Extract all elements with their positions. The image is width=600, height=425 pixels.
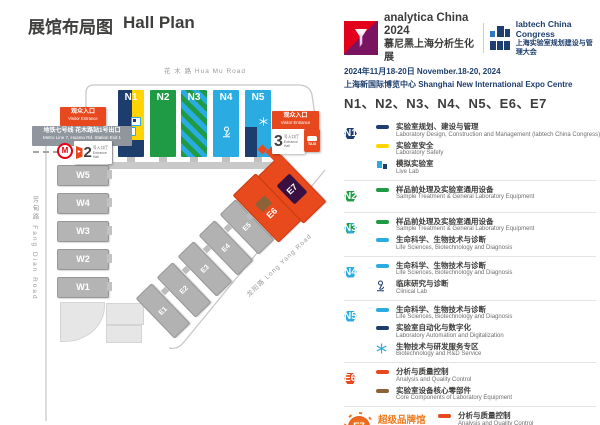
- hall-w2: W2: [57, 249, 109, 270]
- badge-n5: N5: [344, 311, 357, 322]
- legend-section-n3: N3 样品前处理及实验室通用设备Sample Treatment & Gener…: [344, 212, 596, 256]
- visitor-entrance-cn: 观众入口: [60, 109, 106, 116]
- hall-w4: W4: [57, 193, 109, 214]
- analytica-name: analytica China 2024: [384, 12, 477, 38]
- legend-section-n1: N1 实验室规划、建设与管理Laboratory Design, Constru…: [344, 118, 596, 180]
- hall-e1-label: E1: [157, 306, 168, 317]
- hall-e4-label: E4: [220, 243, 231, 254]
- taxi-car-icon: [307, 136, 317, 141]
- event-venue: 上海新国际博览中心 Shanghai New International Exp…: [344, 80, 596, 90]
- entrance-3-label-en: Entrance Hall: [284, 140, 303, 148]
- logo-row: analytica China 2024 慕尼黑上海分析生化展 labtech …: [344, 12, 596, 64]
- snowflake-icon: [259, 117, 268, 126]
- swatch-blue: [376, 308, 389, 312]
- entrance-2-label-en: Entrance Hall: [93, 151, 110, 159]
- shanghai-metro-logo: M: [57, 143, 73, 159]
- visitor-entrance-cn: 观众入口: [272, 113, 319, 120]
- labtech-name: labtech China Congress: [516, 19, 596, 39]
- legend-item: 模拟实验室Live Lab: [376, 160, 600, 176]
- swatch-yellow: [376, 144, 389, 148]
- hall-n3: N3: [181, 90, 207, 157]
- hall-e5-label: E5: [241, 222, 252, 233]
- entrance-hall-3-sign: 3 号入口厅 Entrance Hall: [272, 129, 305, 154]
- hall-n4-label: N4: [213, 92, 239, 103]
- legend-section-n2: N2 样品前处理及实验室通用设备Sample Treatment & Gener…: [344, 180, 596, 212]
- snowflake-icon: [376, 343, 387, 354]
- legend-item: 实验室安全Laboratory Safety: [376, 142, 600, 158]
- swatch-brown: [376, 389, 389, 393]
- legend-item: 实验室自动化与数字化Laboratory Automation and Digi…: [376, 324, 512, 340]
- hall-e7-label: E7: [285, 182, 300, 197]
- event-date: 2024年11月18-20日 November.18-20, 2024: [344, 67, 596, 77]
- analytica-cn-name: 慕尼黑上海分析生化展: [384, 38, 477, 64]
- legend-item: 生命科学、生物技术与诊断Life Sciences, Biotechnology…: [376, 262, 512, 278]
- entrance-hall-2-sign: ▸ 2 号入口厅 Entrance Hall: [74, 141, 112, 164]
- legend-item: 实验室规划、建设与管理Laboratory Design, Constructi…: [376, 123, 600, 139]
- hall-n4: N4: [213, 90, 239, 157]
- visitor-entrance-badge-right: 观众入口 Visitor Entrance: [272, 111, 319, 130]
- swatch-navy: [376, 326, 389, 330]
- connector: [107, 282, 112, 291]
- taxi-stand-badge: TAXI: [304, 129, 320, 152]
- legend-item: 样品前处理及实验室通用设备Sample Treatment & General …: [376, 186, 534, 202]
- e7-china-force-zone: E7: [276, 173, 307, 204]
- hall-n3-label: N3: [181, 92, 207, 103]
- legend: N1 实验室规划、建设与管理Laboratory Design, Constru…: [344, 118, 596, 425]
- visitor-entrance-en: Visitor Entrance: [60, 116, 106, 121]
- hall-w1: W1: [57, 277, 109, 298]
- hall-n1-label: N1: [118, 92, 144, 103]
- labtech-logo: [490, 26, 510, 51]
- swatch-green: [376, 220, 389, 224]
- hall-n5: N5: [245, 90, 271, 157]
- hall-w5: W5: [57, 165, 109, 186]
- legend-item: 生命科学、生物技术与诊断Life Sciences, Biotechnology…: [376, 236, 534, 252]
- hall-e2-label: E2: [178, 285, 189, 296]
- legend-item: 样品前处理及实验室通用设备Sample Treatment & General …: [376, 218, 534, 234]
- live-lab-icon: [376, 160, 388, 170]
- swatch-red: [438, 414, 451, 418]
- swatch-red: [376, 370, 389, 374]
- metro-sign-cn: 地铁七号线 花木路站1号出口: [32, 128, 132, 135]
- legend-item: 分析与质量控制Analysis and Quality Control: [438, 412, 533, 425]
- badge-n2: N2: [344, 191, 357, 202]
- taxi-label: TAXI: [308, 142, 316, 146]
- hall-n2: N2: [150, 90, 176, 157]
- divider: [483, 23, 484, 53]
- legend-item: 生命科学、生物技术与诊断Life Sciences, Biotechnology…: [376, 306, 512, 322]
- live-lab-icon: [131, 117, 141, 126]
- legend-section-e7: E7 超级品牌馆 Super Hall 分析与质量控制Analysis and …: [344, 406, 596, 425]
- hall-n5-label: N5: [245, 92, 271, 103]
- badge-n3: N3: [344, 223, 357, 234]
- visitor-entrance-badge-left: 观众入口 Visitor Entrance: [60, 107, 106, 126]
- hall-n1: N1: [118, 90, 144, 157]
- microscope-icon: [222, 126, 231, 138]
- swatch-navy: [376, 125, 389, 129]
- connector: [107, 170, 112, 179]
- legend-section-n5: N5 生命科学、生物技术与诊断Life Sciences, Biotechnol…: [344, 300, 596, 363]
- legend-item: 实验室设备核心零部件Core Components of Laboratory …: [376, 387, 512, 403]
- north-concourse: [108, 162, 280, 169]
- connector: [107, 254, 112, 263]
- connector: [107, 226, 112, 235]
- hall-n2-label: N2: [150, 92, 176, 103]
- hall-plan-page: 展馆布局图 Hall Plan 花 木 路 Hua Mu Road 芳甸路 Fa…: [0, 0, 600, 425]
- connector: [107, 198, 112, 207]
- legend-section-e6: E6 分析与质量控制Analysis and Quality Control 实…: [344, 362, 596, 406]
- badge-e7-super-hall: E7: [344, 412, 374, 425]
- n5-automation-zone: [245, 127, 257, 157]
- entrance-2-number: 2: [84, 145, 92, 160]
- legend-section-n4: N4 生命科学、生物技术与诊断Life Sciences, Biotechnol…: [344, 256, 596, 300]
- metro-line-dashes: [33, 151, 59, 153]
- service-building: [106, 303, 144, 325]
- hall-w3: W3: [57, 221, 109, 242]
- entrance-3-number: 3: [274, 134, 283, 149]
- super-hall-cn: 超级品牌馆: [378, 415, 434, 425]
- legend-item: 临床研究与诊断Clinical Lab: [376, 280, 512, 296]
- badge-n4: N4: [344, 267, 357, 278]
- road-huamu: 花 木 路 Hua Mu Road: [150, 65, 260, 75]
- badge-n1: N1: [344, 128, 357, 139]
- event-halls-list: N1、N2、N3、N4、N5、E6、E7: [344, 93, 596, 112]
- info-panel: analytica China 2024 慕尼黑上海分析生化展 labtech …: [344, 12, 596, 425]
- road-fangdian: 芳甸路 Fang Dian Road: [29, 196, 39, 306]
- service-building: [106, 325, 142, 343]
- swatch-blue: [376, 238, 389, 242]
- analytica-logo: [344, 21, 378, 55]
- microscope-icon: [376, 280, 385, 292]
- swatch-green: [376, 188, 389, 192]
- hall-e3-label: E3: [199, 264, 210, 275]
- visitor-entrance-en: Visitor Entrance: [272, 120, 319, 125]
- legend-item: 生物技术与研发服务专区Biotechnology and R&D Service: [376, 343, 512, 359]
- labtech-cn-name: 上海实验室规划建设与管理大会: [516, 39, 596, 57]
- badge-e6: E6: [344, 373, 356, 384]
- entrance-gate-icon: ▸: [76, 146, 83, 159]
- swatch-blue: [376, 264, 389, 268]
- legend-item: 分析与质量控制Analysis and Quality Control: [376, 368, 512, 384]
